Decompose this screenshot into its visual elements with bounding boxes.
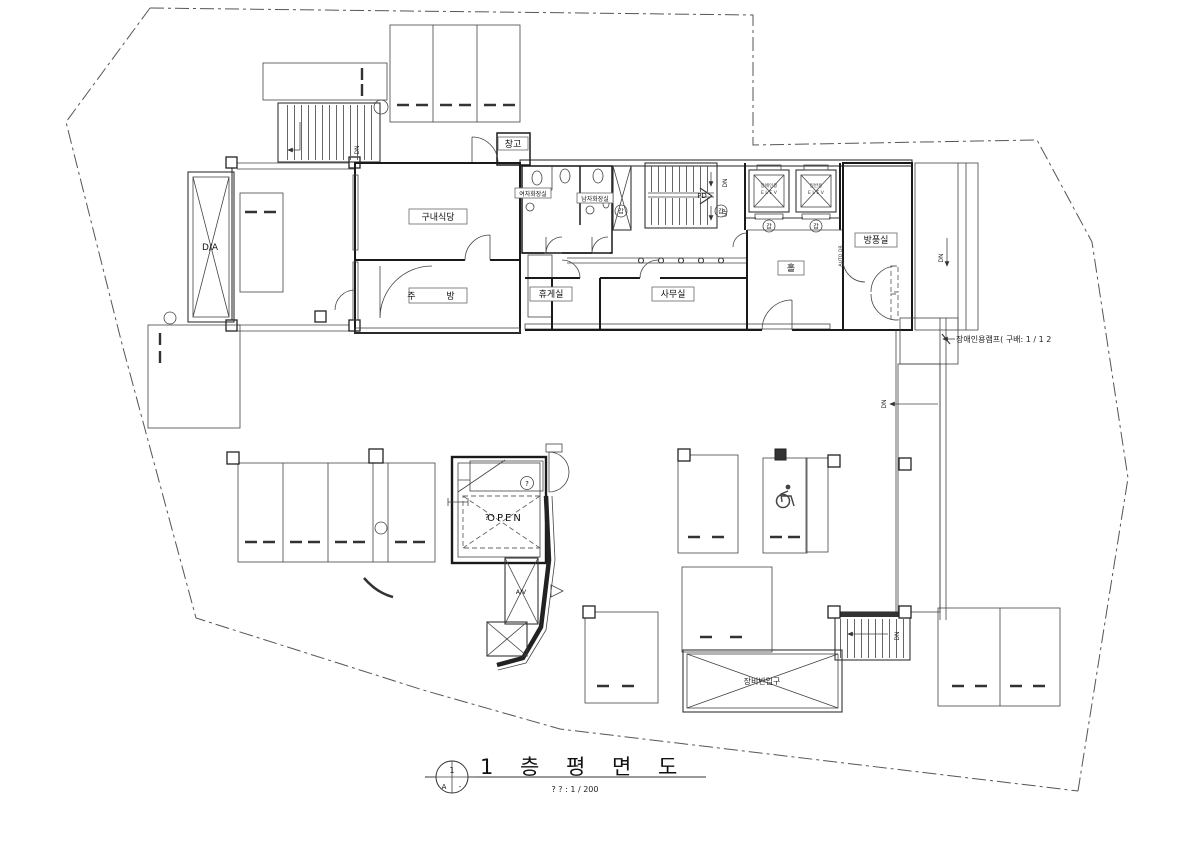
unknown-mark: ? (525, 480, 529, 488)
scale-note: ? ? : 1 / 200 (552, 785, 599, 794)
ramp-walkway: DN (881, 318, 958, 620)
elevators: 장애인용 E L E V 일반용 E L E V (745, 163, 840, 230)
bottom-exterior-stair: DN (835, 612, 910, 660)
stair-dn-label: DN (354, 145, 361, 154)
unknown-mark: ? (485, 513, 489, 522)
duct-shaft (613, 166, 631, 230)
shaft-label-pd: PD (697, 192, 707, 200)
elevator-left-car-label: E L E V (761, 190, 778, 196)
elevator-right-car-label: E L E V (808, 190, 825, 196)
topleft-exterior-stair: DN (278, 100, 388, 162)
main-stair: DN UP (645, 163, 729, 228)
walkway-dn-label: DN (881, 399, 888, 408)
floorplan-sheet: DN DN UP 장애인용 E L E V 일반용 E L (0, 0, 1191, 842)
site-boundary (66, 8, 1128, 791)
deck-dn-label: DN (938, 253, 945, 262)
shaft-label-av: A/V (516, 589, 527, 596)
floorplan-drawing: DN DN UP 장애인용 E L E V 일반용 E L (0, 0, 1191, 842)
room-labels: 창고 구내식당 주 방 휴게실 사무실 홀 방풍실 여자화장실 남자화장실 D/… (202, 137, 1051, 686)
auto-door-note: AUTO DR (838, 245, 844, 267)
elevator-left-use-label: 장애인용 (761, 182, 778, 189)
bottom-left-parking (227, 449, 435, 597)
stair-dn-label: DN (722, 178, 729, 187)
room-label-lounge: 휴게실 (539, 289, 564, 300)
room-label-womens-toilet: 여자화장실 (519, 190, 547, 198)
sheet-ref: A (442, 783, 447, 791)
door-type-marks: 갑 갑 갑 갑 ? (521, 205, 823, 490)
door-type-mark: 갑 (718, 208, 724, 216)
bottom-stair-dn-label: DN (894, 631, 901, 640)
wheelchair-icon (777, 485, 795, 508)
room-label-kitchen: 주 방 (407, 291, 468, 302)
east-deck: DN (915, 163, 978, 330)
equipment-entrance-label: 장비반입구 (744, 676, 781, 686)
elevator-right-use-label: 일반용 (810, 182, 823, 189)
west-terrace (226, 157, 360, 331)
south-parking (583, 449, 1060, 706)
door-type-mark: 갑 (813, 223, 819, 231)
center-stairwell (448, 444, 569, 670)
interior-walls (525, 230, 843, 330)
door-type-mark: 갑 (766, 223, 772, 231)
room-label-cafeteria: 구내식당 (421, 212, 454, 223)
drawing-title: 1 층 평 면 도 (480, 755, 687, 779)
room-label-storage: 창고 (505, 139, 522, 150)
room-label-vestibule: 방풍실 (864, 235, 889, 246)
open-void-label: OPEN (487, 513, 523, 524)
door-type-mark: 갑 (618, 208, 624, 216)
title-block: 1 A - 1 층 평 면 도 ? ? : 1 / 200 (425, 755, 706, 794)
room-label-hall: 홀 (787, 262, 795, 274)
detail-number: 1 (449, 766, 454, 775)
ramp-note: 장애인용램프( 구배: 1 / 1 2 (956, 334, 1051, 344)
room-label-office: 사무실 (661, 289, 686, 300)
shaft-label-da: D/A (202, 243, 219, 253)
room-label-mens-toilet: 남자화장실 (581, 195, 609, 203)
